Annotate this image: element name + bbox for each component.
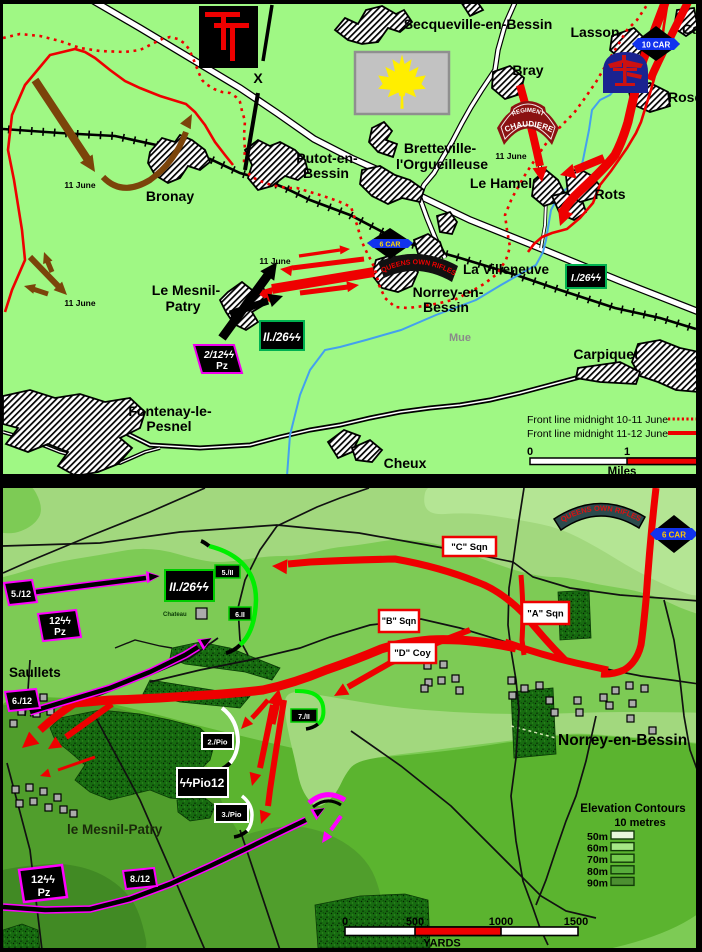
svg-text:l'Orgueilleuse: l'Orgueilleuse [396,156,488,172]
svg-text:10 CAR: 10 CAR [642,41,671,50]
svg-text:"D" Coy: "D" Coy [394,648,431,659]
svg-text:3./Pio: 3./Pio [221,810,241,819]
svg-text:11 June: 11 June [64,298,95,308]
svg-text:Fontenay-le-: Fontenay-le- [128,403,212,419]
svg-text:11 June: 11 June [495,151,526,161]
svg-text:"A" Sqn: "A" Sqn [527,608,564,619]
svg-text:5./II: 5./II [222,570,234,577]
svg-text:II./26ϟϟ: II./26ϟϟ [169,580,209,594]
svg-text:2/12ϟϟ: 2/12ϟϟ [203,350,235,361]
svg-text:60m: 60m [587,843,608,855]
svg-text:10 metres: 10 metres [614,817,665,829]
svg-text:Lasson: Lasson [570,24,619,40]
svg-text:0: 0 [527,446,533,458]
svg-text:7./II: 7./II [298,714,310,721]
svg-text:50m: 50m [587,831,608,843]
svg-text:II./26ϟϟ: II./26ϟϟ [263,332,302,344]
svg-text:Front line midnight 11-12 June: Front line midnight 11-12 June [527,428,668,440]
svg-text:Secqueville-en-Bessin: Secqueville-en-Bessin [404,16,553,32]
svg-text:Rots: Rots [594,186,625,202]
svg-text:11 June: 11 June [259,256,290,266]
svg-text:Bray: Bray [512,62,543,78]
svg-text:12ϟϟ: 12ϟϟ [31,874,55,886]
svg-text:La Villeneuve: La Villeneuve [463,262,550,277]
svg-text:6./12: 6./12 [12,696,32,706]
svg-text:2./Pio: 2./Pio [207,738,227,747]
svg-text:Bretteville-: Bretteville- [404,140,477,156]
svg-text:80m: 80m [587,866,608,878]
svg-text:X: X [253,70,263,86]
svg-text:Mue: Mue [449,332,471,344]
svg-text:Pz: Pz [54,627,66,638]
svg-text:Cheux: Cheux [384,455,427,471]
svg-text:90m: 90m [587,877,608,889]
svg-text:11 June: 11 June [64,180,95,190]
svg-text:70m: 70m [587,854,608,866]
svg-text:Norrey-en-Bessin: Norrey-en-Bessin [558,732,687,749]
svg-text:"C" Sqn: "C" Sqn [451,542,488,553]
svg-text:Bronay: Bronay [146,188,194,204]
svg-text:12ϟϟ: 12ϟϟ [49,616,71,627]
svg-text:6.II: 6.II [235,612,245,619]
svg-text:6 CAR: 6 CAR [379,242,400,249]
svg-text:Putot-en-: Putot-en- [296,150,358,166]
svg-text:Saullets: Saullets [9,665,61,680]
svg-text:Carpiquet: Carpiquet [573,346,639,362]
svg-text:Patry: Patry [165,298,200,314]
svg-text:Bessin: Bessin [423,299,469,315]
svg-text:Le Mesnil-: Le Mesnil- [152,282,221,298]
svg-text:le Mesnil-Patry: le Mesnil-Patry [67,822,163,837]
svg-text:6 CAR: 6 CAR [662,531,686,540]
svg-text:Bessin: Bessin [303,165,349,181]
svg-text:Pz: Pz [216,361,228,372]
svg-text:1: 1 [624,446,630,458]
svg-text:YARDS: YARDS [423,938,461,950]
svg-text:8./12: 8./12 [130,874,150,884]
svg-text:Front line midnight 10-11 June: Front line midnight 10-11 June [527,414,668,426]
svg-text:Norrey-en-: Norrey-en- [413,284,484,300]
svg-text:I./26ϟϟ: I./26ϟϟ [571,273,602,284]
svg-text:"B" Sqn: "B" Sqn [382,616,417,626]
svg-text:Pesnel: Pesnel [146,418,191,434]
svg-text:Pz: Pz [38,887,51,899]
svg-text:ϟϟPio12: ϟϟPio12 [180,776,225,790]
svg-text:Chateau: Chateau [163,612,187,618]
svg-text:Le Hamel: Le Hamel [470,175,532,191]
svg-text:Elevation Contours: Elevation Contours [580,803,685,815]
svg-text:5./12: 5./12 [11,589,31,599]
